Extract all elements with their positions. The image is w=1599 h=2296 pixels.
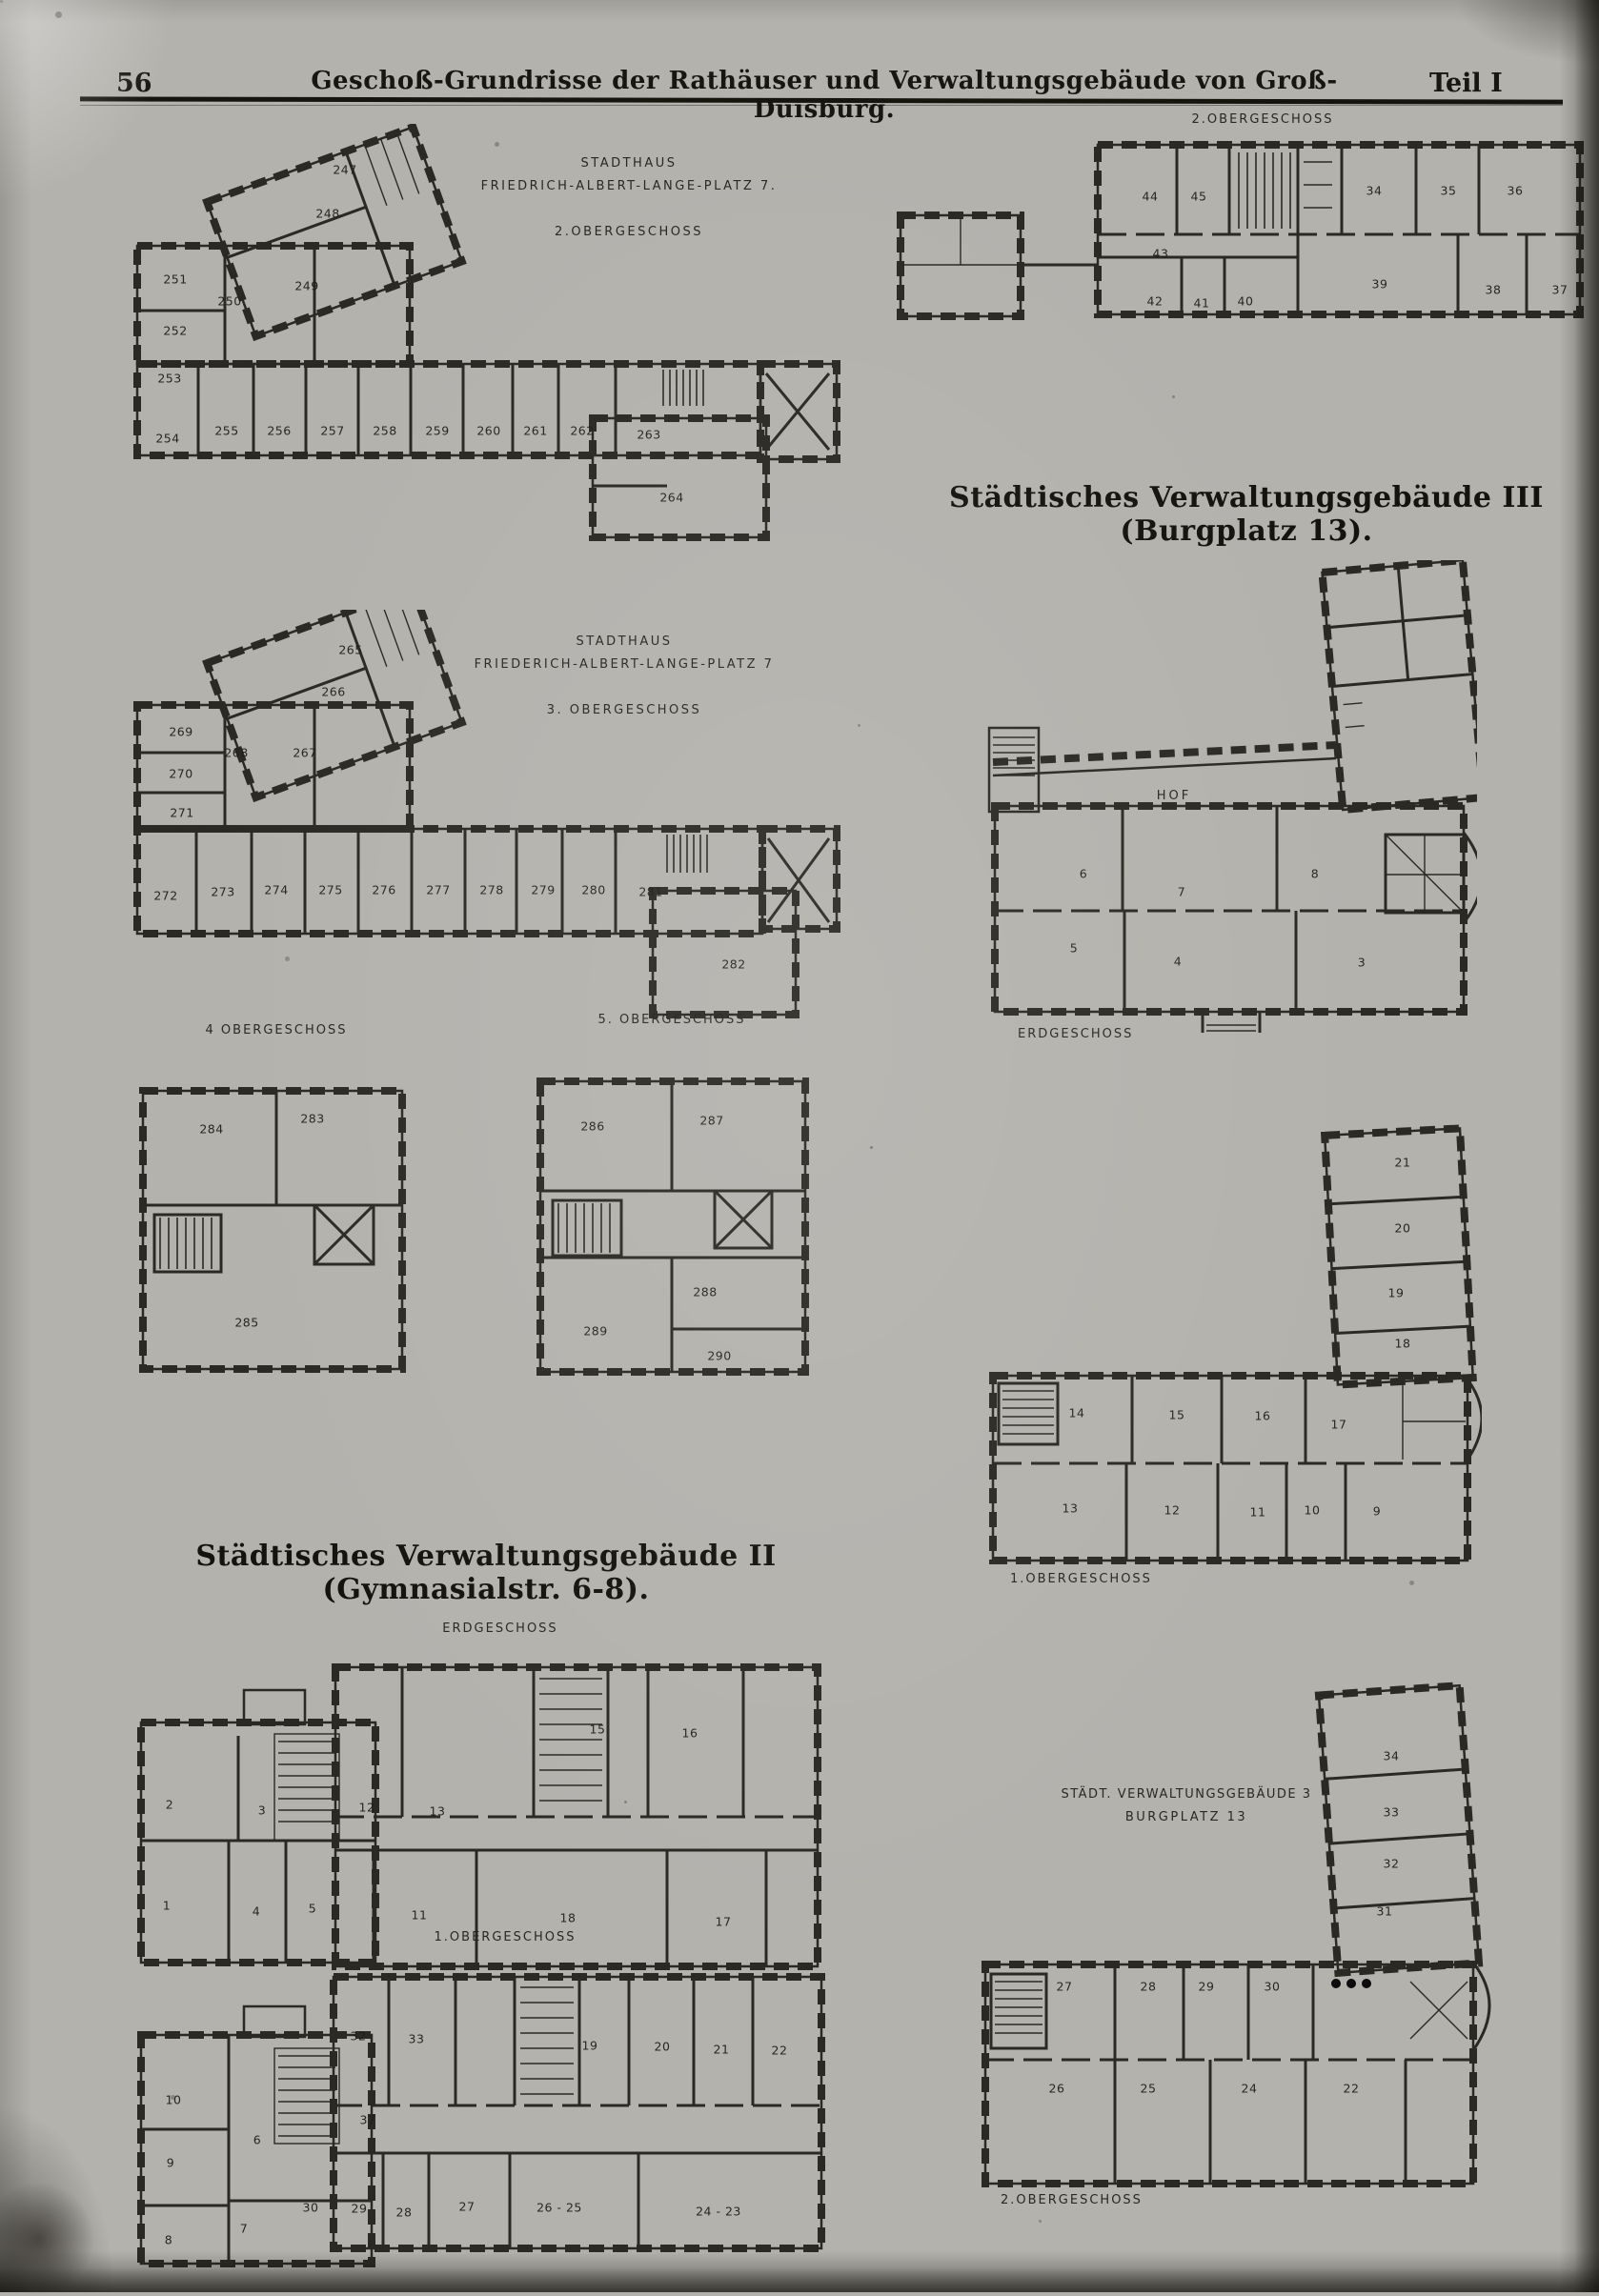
room-number: 274 [264,883,288,897]
heading-verwaltungsgebaeude-3: Städtisches Verwaltungsgebäude III (Burg… [913,481,1580,548]
room-number: 22 [772,2044,788,2058]
page-edge-shadow-bottom [0,2267,1599,2292]
room-number: 35 [1441,184,1457,198]
room-number: 5 [1070,941,1078,956]
room-number: 32 [1384,1857,1400,1871]
room-number: 279 [531,883,555,897]
room-number: 263 [637,428,660,442]
figure-stadthaus-og3: STADTHAUS FRIEDERICH-ALBERT-LANGE-PLATZ … [133,610,843,1048]
room-number: 21 [714,2043,730,2057]
room-number: 18 [560,1911,577,1925]
room-number: 249 [294,279,318,293]
room-number: 16 [682,1726,698,1741]
room-number: 32 [351,2029,367,2044]
page-part-label: Teil I [1429,69,1553,98]
room-number-layer: 343332312728293026252422 [972,1677,1491,2292]
figure-stadthaus-og2: STADTHAUS FRIEDRICH-ALBERT-LANGE-PLATZ 7… [133,124,843,553]
room-number: 283 [300,1112,324,1126]
room-number: 6 [253,2133,261,2147]
room-number: 15 [590,1722,606,1737]
room-number-layer: 286287288289290 [529,1005,815,1377]
figure-og5: 5. OBERGESCHOSS 286287288289290 [529,1005,815,1377]
figure-burgplatz-eg: HOF ERDGESCHOSS 678543 [982,560,1477,1051]
room-number: 284 [199,1122,223,1137]
scanned-book-page: 56 Geschoß-Grundrisse der Rathäuser und … [0,0,1599,2292]
room-number: 29 [1199,1980,1215,1994]
room-number: 280 [581,883,605,897]
room-number: 15 [1169,1408,1185,1422]
room-number: 27 [459,2200,476,2214]
figure-gym-eg: ERDGESCHOSS 2312131516145111817 [133,1612,829,1974]
room-number: 30 [303,2201,319,2215]
room-number-layer: 444534353643424140393837 [886,112,1596,370]
room-number: 269 [169,725,192,739]
room-number: 5 [309,1902,316,1916]
room-number: 275 [318,883,342,897]
room-number: 42 [1147,294,1164,309]
room-number: 28 [396,2205,413,2220]
room-number-layer: 2652662672682692702712722732742752762772… [133,610,843,1048]
room-number: 13 [430,1804,446,1819]
room-number: 264 [659,491,683,505]
room-number: 10 [166,2093,182,2107]
room-number: 6 [1080,867,1087,881]
figure-gym-og1: 1.OBERGESCHOSS 1069783233371920212230292… [133,1924,829,2292]
room-number: 285 [234,1316,258,1330]
room-number: 270 [169,767,192,781]
room-number: 17 [1331,1418,1347,1432]
room-number: 253 [157,372,181,386]
figure-burgplatz-og1: 1.OBERGESCHOSS 2120191814151617131211109 [972,1124,1482,1596]
room-number-layer: 284283285 [133,1010,419,1381]
room-number: 257 [320,424,344,438]
room-number: 281 [638,885,662,899]
room-number: 14 [1069,1406,1085,1420]
room-number: 272 [153,889,177,903]
room-number: 41 [1194,296,1210,311]
room-number: 43 [1153,247,1169,261]
room-number: 11 [1250,1505,1266,1520]
room-number: 37 [1552,283,1569,297]
room-number: 40 [1238,294,1254,309]
room-number: 34 [1384,1749,1400,1763]
room-number: 260 [476,424,500,438]
room-number: 4 [253,1904,260,1919]
room-number: 252 [163,324,187,338]
room-number: 10 [1305,1503,1321,1518]
room-number: 33 [1384,1805,1400,1820]
room-number: 288 [693,1285,717,1299]
figure-burgplatz-og2-top: 2.OBERGESCHOSS 444534353643424140393837 [886,112,1596,370]
room-number: 36 [1508,184,1524,198]
room-number: 247 [333,163,356,177]
room-number: 4 [1174,955,1182,969]
room-number: 25 [1141,2082,1157,2096]
room-number: 289 [583,1324,607,1339]
room-number: 8 [165,2233,172,2247]
room-number: 20 [655,2040,671,2054]
room-number: 19 [1388,1286,1405,1300]
room-number: 24 - 23 [696,2205,741,2219]
figure-og4: 4 OBERGESCHOSS 284283285 [133,1010,419,1381]
room-number: 278 [479,883,503,897]
room-number: 12 [359,1801,375,1815]
room-number: 287 [699,1114,723,1128]
room-number: 259 [425,424,449,438]
room-number: 8 [1311,867,1319,881]
header-rule-shadow [80,105,1563,106]
room-number: 22 [1344,2082,1360,2096]
room-number-layer: 2312131516145111817 [133,1612,829,1974]
room-number: 26 - 25 [536,2201,582,2215]
room-number: 12 [1164,1503,1181,1518]
room-number: 256 [267,424,291,438]
figure-burgplatz-og2-bottom: STÄDT. VERWALTUNGSGEBÄUDE 3 BURGPLATZ 13… [972,1677,1491,2292]
room-number: 44 [1143,190,1159,204]
room-number: 31 [1377,1904,1393,1919]
room-number: 29 [352,2202,368,2216]
room-number: 9 [1373,1504,1381,1519]
room-number: 18 [1395,1337,1411,1351]
room-number: 262 [570,424,594,438]
room-number: 3 [1358,956,1366,970]
room-number: 9 [167,2156,174,2170]
room-number: 19 [582,2039,598,2053]
paper-specks [0,0,3,3]
room-number: 251 [163,272,187,287]
room-number: 2 [166,1798,173,1812]
room-number: 24 [1242,2082,1258,2096]
room-number: 286 [580,1119,604,1134]
room-number: 26 [1049,2082,1065,2096]
room-number: 254 [155,432,179,446]
room-number: 273 [211,885,234,899]
room-number: 267 [293,746,316,760]
room-number: 282 [721,957,745,972]
room-number: 13 [1063,1501,1079,1516]
room-number: 1 [163,1899,171,1913]
room-number: 38 [1486,283,1502,297]
room-number: 266 [321,685,345,699]
room-number: 271 [170,806,193,820]
room-number: 37 [360,2113,376,2127]
room-number: 39 [1372,277,1388,292]
room-number: 7 [240,2222,248,2236]
room-number: 16 [1255,1409,1271,1423]
page-number: 56 [116,69,152,98]
room-number: 276 [372,883,395,897]
room-number: 21 [1395,1156,1411,1170]
room-number: 255 [214,424,238,438]
page-edge-shadow-right [1574,0,1599,2292]
room-number: 45 [1191,190,1207,204]
heading-verwaltungsgebaeude-2: Städtisches Verwaltungsgebäude II (Gymna… [114,1540,858,1606]
room-number: 11 [412,1908,428,1923]
room-number-layer: 2120191814151617131211109 [972,1124,1482,1596]
room-number: 265 [338,643,362,657]
room-number: 277 [426,883,450,897]
room-number: 248 [315,207,339,221]
room-number: 3 [258,1803,266,1818]
room-number: 268 [224,746,248,760]
room-number: 33 [409,2032,425,2046]
room-number: 250 [217,294,241,309]
room-number-layer: 106978323337192021223029282726 - 2524 - … [133,1924,829,2292]
room-number: 258 [373,424,396,438]
room-number: 261 [523,424,547,438]
room-number: 30 [1265,1980,1281,1994]
room-number: 290 [707,1349,731,1363]
room-number: 20 [1395,1221,1411,1236]
room-number: 27 [1057,1980,1073,1994]
room-number: 28 [1141,1980,1157,1994]
room-number-layer: 678543 [982,560,1477,1051]
room-number: 7 [1178,885,1185,899]
room-number: 34 [1366,184,1383,198]
room-number-layer: 2472482492512502522532542552562572582592… [133,124,843,553]
